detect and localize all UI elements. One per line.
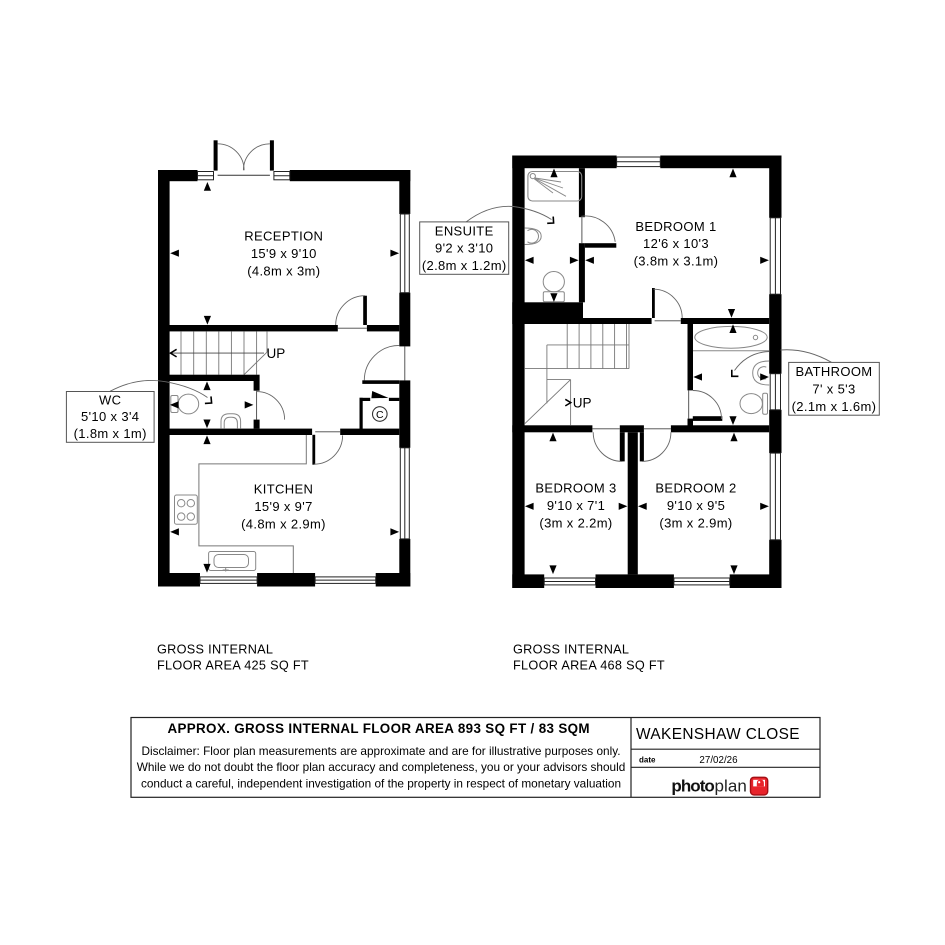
svg-text:While we do not doubt the floo: While we do not doubt the floor plan acc… [137, 760, 626, 774]
svg-text:UP: UP [267, 346, 286, 361]
svg-text:BEDROOM 39'10 x 7'1(3m x 2.2m): BEDROOM 39'10 x 7'1(3m x 2.2m) [535, 481, 616, 531]
svg-text:C: C [376, 409, 384, 421]
svg-text:RECEPTION15'9 x 9'10(4.8m x 3m: RECEPTION15'9 x 9'10(4.8m x 3m) [244, 229, 323, 279]
svg-text:WAKENSHAW CLOSE: WAKENSHAW CLOSE [636, 726, 800, 743]
svg-text:BEDROOM 112'6 x 10'3(3.8m x 3.: BEDROOM 112'6 x 10'3(3.8m x 3.1m) [634, 219, 719, 269]
svg-text:plan: plan [715, 776, 747, 795]
svg-text:BEDROOM 29'10 x 9'5(3m x 2.9m): BEDROOM 29'10 x 9'5(3m x 2.9m) [655, 481, 736, 531]
svg-text:27/02/26: 27/02/26 [699, 755, 738, 766]
svg-text:APPROX. GROSS INTERNAL FLOOR A: APPROX. GROSS INTERNAL FLOOR AREA 893 SQ… [167, 721, 589, 736]
svg-text:date: date [639, 756, 656, 765]
svg-text:Disclaimer: Floor plan measure: Disclaimer: Floor plan measurements are … [141, 744, 620, 758]
svg-text:photo: photo [671, 776, 714, 795]
svg-text:conduct a careful, independent: conduct a careful, independent investiga… [141, 777, 621, 791]
svg-text:UP: UP [573, 395, 592, 410]
